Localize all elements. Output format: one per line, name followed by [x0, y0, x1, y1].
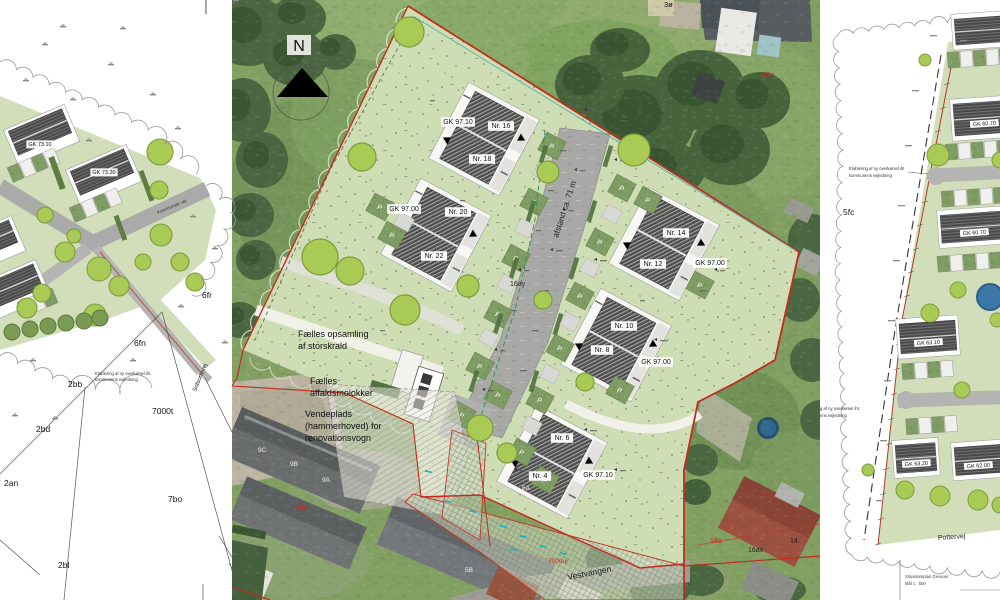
- svg-text:Nr. 16: Nr. 16: [492, 123, 511, 130]
- svg-text:GK 97.10: GK 97.10: [583, 472, 613, 479]
- svg-text:Nr. 22: Nr. 22: [425, 253, 444, 260]
- svg-text:7000t: 7000t: [152, 406, 174, 416]
- svg-text:16bu: 16bu: [291, 503, 308, 512]
- svg-text:affaldsmolokker: affaldsmolokker: [310, 388, 373, 398]
- svg-text:Nr. 6: Nr. 6: [555, 435, 570, 442]
- svg-text:Fælles opsamling: Fælles opsamling: [298, 329, 369, 339]
- svg-text:ens vejledning: ens vejledning: [820, 413, 847, 418]
- svg-text:2bl: 2bl: [58, 560, 69, 570]
- svg-text:7000ur: 7000ur: [548, 558, 569, 565]
- svg-text:af storskrald: af storskrald: [298, 341, 347, 351]
- svg-text:Nr. 12: Nr. 12: [644, 261, 663, 268]
- svg-text:5fc: 5fc: [843, 207, 855, 217]
- svg-text:Etablering af ny overkørsel ih: Etablering af ny overkørsel iht: [849, 166, 905, 171]
- svg-text:14: 14: [790, 538, 798, 545]
- svg-text:2bd: 2bd: [36, 424, 50, 434]
- svg-text:2an: 2an: [4, 478, 18, 488]
- svg-text:Etablering af ny overkørsel ih: Etablering af ny overkørsel iht.: [95, 371, 152, 376]
- svg-text:7bo: 7bo: [168, 494, 182, 504]
- svg-text:9C: 9C: [258, 447, 267, 454]
- svg-text:Vendeplads: Vendeplads: [305, 409, 353, 419]
- svg-text:renovationsvogn: renovationsvogn: [305, 433, 371, 443]
- svg-text:Mål 1 : 500: Mål 1 : 500: [905, 581, 926, 586]
- svg-text:3ø: 3ø: [664, 0, 673, 9]
- svg-text:6fr: 6fr: [202, 290, 212, 300]
- svg-text:Nr. 14: Nr. 14: [667, 230, 686, 237]
- svg-text:(hammerhoved) for: (hammerhoved) for: [305, 421, 382, 431]
- svg-text:Nr. 20: Nr. 20: [449, 209, 468, 216]
- svg-text:kommunens vejledning: kommunens vejledning: [95, 377, 139, 382]
- svg-text:GK 97.00: GK 97.00: [641, 359, 671, 366]
- svg-text:Nr. 4: Nr. 4: [533, 473, 548, 480]
- svg-text:N: N: [293, 38, 305, 55]
- svg-text:Fælles: Fælles: [310, 376, 338, 386]
- svg-text:9A: 9A: [322, 477, 331, 484]
- svg-text:18a: 18a: [710, 538, 722, 545]
- svg-text:Situationsplan Gevauer: Situationsplan Gevauer: [905, 574, 949, 579]
- svg-text:16ay: 16ay: [510, 281, 526, 288]
- svg-text:Nr. 10: Nr. 10: [615, 323, 634, 330]
- svg-text:6fn: 6fn: [134, 338, 146, 348]
- svg-text:GK 97.10: GK 97.10: [443, 119, 473, 126]
- svg-text:5A: 5A: [522, 485, 531, 492]
- svg-text:5B: 5B: [465, 567, 473, 574]
- svg-text:GK 97.00: GK 97.00: [695, 260, 725, 267]
- svg-text:GK 73.10: GK 73.10: [28, 142, 51, 148]
- svg-text:16ax: 16ax: [748, 547, 764, 554]
- svg-text:Nr. 8: Nr. 8: [595, 347, 610, 354]
- svg-text:9B: 9B: [290, 461, 298, 468]
- svg-text:30e: 30e: [762, 70, 775, 79]
- svg-text:Nr. 18: Nr. 18: [473, 156, 492, 163]
- svg-text:g af ny overkørsel iht: g af ny overkørsel iht: [820, 406, 860, 411]
- svg-text:kommunens vejledning: kommunens vejledning: [849, 173, 893, 178]
- svg-text:GK 73.30: GK 73.30: [92, 170, 115, 176]
- svg-text:2bb: 2bb: [68, 379, 82, 389]
- svg-text:GK 97.00: GK 97.00: [389, 206, 419, 213]
